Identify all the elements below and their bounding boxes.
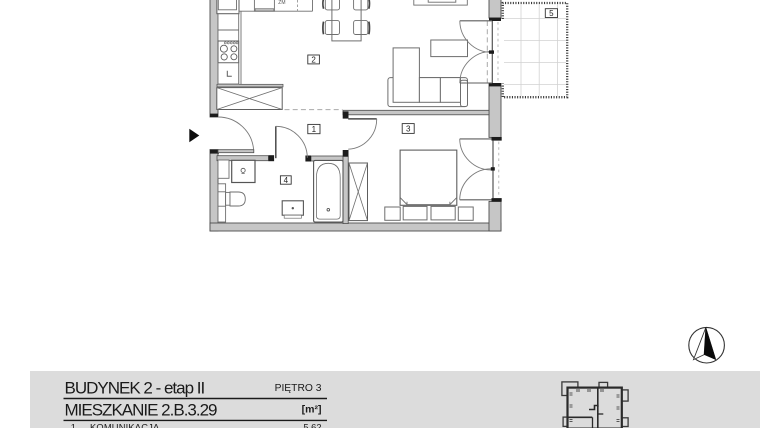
svg-text:KOMUNIKACJA: KOMUNIKACJA bbox=[90, 422, 160, 428]
svg-text:PIĘTRO 3: PIĘTRO 3 bbox=[275, 383, 322, 394]
svg-text:5.62: 5.62 bbox=[303, 422, 321, 428]
svg-text:5: 5 bbox=[549, 9, 554, 18]
svg-text:BUDYNEK 2 - etap II: BUDYNEK 2 - etap II bbox=[65, 378, 205, 397]
svg-text:4: 4 bbox=[284, 176, 289, 185]
svg-text:[m²]: [m²] bbox=[302, 404, 322, 416]
svg-text:2: 2 bbox=[311, 56, 316, 65]
svg-text:1: 1 bbox=[71, 422, 76, 428]
svg-text:1: 1 bbox=[312, 125, 317, 134]
svg-text:MIESZKANIE 2.B.3.29: MIESZKANIE 2.B.3.29 bbox=[65, 401, 218, 420]
svg-text:3: 3 bbox=[406, 125, 411, 134]
svg-text:ZM: ZM bbox=[278, 0, 285, 6]
